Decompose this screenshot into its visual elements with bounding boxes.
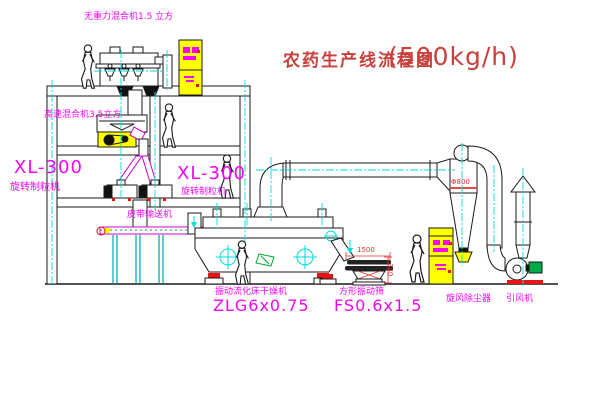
control-cabinet-right xyxy=(429,228,453,284)
label-gravity-mixer: 无重力混合机1.5 立方 xyxy=(84,13,173,22)
dimension-screen-length: 1500 xyxy=(357,247,375,254)
label-granulator-right-model: XL-300 xyxy=(177,165,246,183)
label-cyclone: 旋风除尘器 xyxy=(446,295,491,304)
person-figure xyxy=(82,45,95,88)
process-flow-diagram: 农药生产线流程图 (500kg/h) 无重力混合机1.5 立方 高速混合机3.5… xyxy=(0,0,600,403)
induced-draft-fan xyxy=(506,258,543,284)
label-high-speed-mixer: 高速混合机3.5立方 xyxy=(44,111,121,120)
control-cabinet-top xyxy=(179,40,202,95)
belt-conveyor xyxy=(97,227,207,283)
gravity-mixer xyxy=(96,47,172,116)
label-granulator-right-name: 旋转制粒机 xyxy=(181,188,226,197)
dimension-screen-height: 340 xyxy=(386,263,393,276)
diagram-title-capacity: (500kg/h) xyxy=(388,44,519,69)
label-granulator-left-name: 旋转制粒机 xyxy=(10,183,60,193)
person-figure xyxy=(163,104,176,147)
dimension-cyclone-diameter: Φ800 xyxy=(451,179,470,186)
label-granulator-left-model: XL-300 xyxy=(14,159,83,177)
label-screen-model: FS0.6x1.5 xyxy=(334,298,422,314)
label-belt-conveyor: 皮带输送机 xyxy=(127,211,172,220)
label-dryer-model: ZLG6x0.75 xyxy=(213,298,310,314)
person-figure xyxy=(410,235,424,282)
label-fan: 引风机 xyxy=(506,295,533,304)
conveyor-legs xyxy=(113,235,163,283)
